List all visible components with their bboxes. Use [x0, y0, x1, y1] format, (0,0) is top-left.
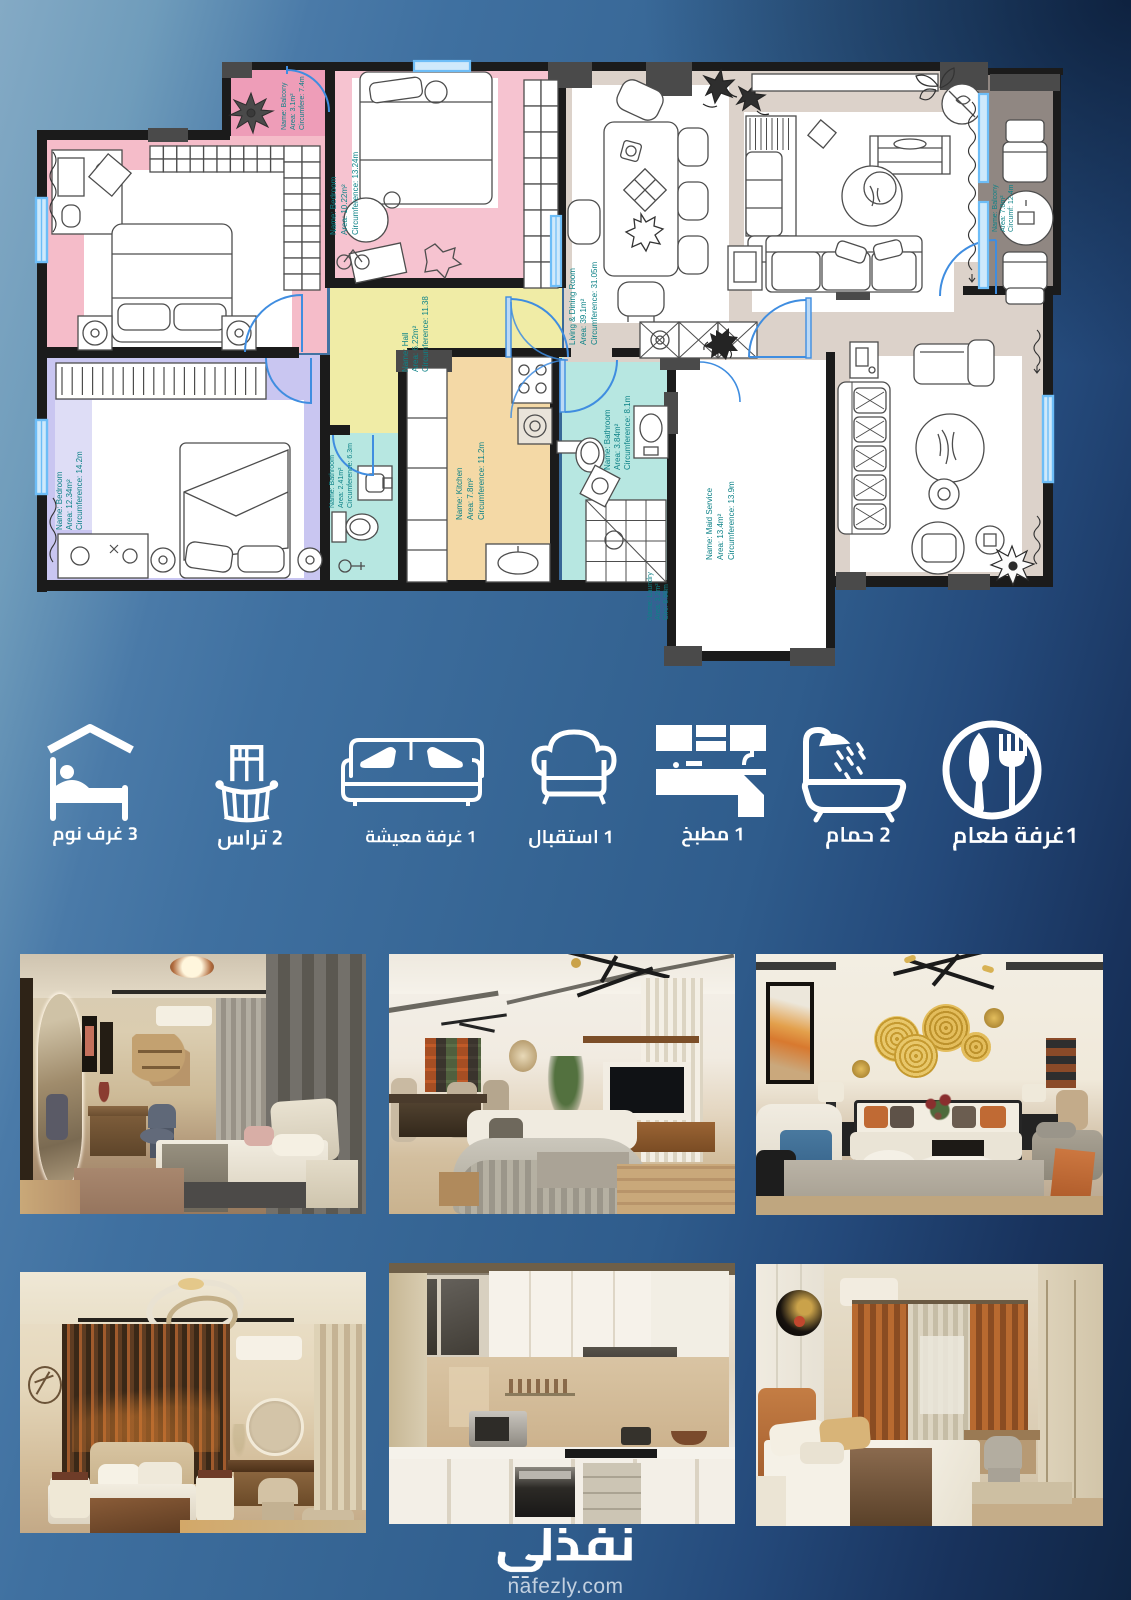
svg-text:Circumference: 8.1m: Circumference: 8.1m [623, 395, 632, 470]
svg-text:Area: 7.0m²: Area: 7.0m² [1000, 195, 1007, 232]
svg-text:Circumference: 14.2m: Circumference: 14.2m [75, 451, 84, 530]
svg-text:Name: Bedroom: Name: Bedroom [329, 176, 338, 235]
svg-text:Area: 2.41m²: Area: 2.41m² [338, 467, 345, 508]
svg-text:Circumference: 11.2m: Circumference: 11.2m [477, 442, 486, 520]
svg-text:Name: Laundry: Name: Laundry [647, 572, 654, 620]
svg-text:Circumference: 6.3m: Circumference: 6.3m [347, 443, 354, 508]
svg-text:Area: 10.22m²: Area: 10.22m² [340, 184, 349, 235]
svg-text:Circumference: 13.9m: Circumference: 13.9m [727, 481, 736, 560]
svg-text:Area: 3.84m²: Area: 3.84m² [613, 423, 622, 470]
svg-text:Area: 6.22m²: Area: 6.22m² [411, 325, 420, 372]
svg-text:Area: 7.8m²: Area: 7.8m² [466, 478, 475, 520]
svg-text:Area: 13.4m²: Area: 13.4m² [716, 513, 725, 560]
svg-text:Name: Kitchen: Name: Kitchen [455, 468, 464, 520]
svg-text:Living & Dining Room: Living & Dining Room [568, 268, 577, 345]
svg-text:Circ: 6.98m: Circ: 6.98m [663, 584, 670, 620]
svg-text:Name: Maid Service: Name: Maid Service [705, 487, 714, 560]
svg-text:Name: Bathroom: Name: Bathroom [329, 455, 336, 508]
svg-text:Circumference: 11.38: Circumference: 11.38 [421, 296, 430, 372]
svg-text:Circumfere: 7.4m: Circumfere: 7.4m [299, 76, 306, 130]
svg-text:Area: 39.1m²: Area: 39.1m² [579, 298, 588, 345]
svg-text:Name: Balcony: Name: Balcony [992, 184, 999, 232]
svg-text:Name: Balcony: Name: Balcony [281, 82, 288, 130]
svg-text:Area: 3.2m²: Area: 3.2m² [655, 583, 662, 620]
svg-text:Area: 3.1m²: Area: 3.1m² [290, 93, 297, 130]
svg-text:Circumference: 13.24m: Circumference: 13.24m [351, 152, 360, 235]
svg-text:Name: Bathroom: Name: Bathroom [603, 409, 612, 470]
svg-text:Area: 12.34m²: Area: 12.34m² [65, 479, 74, 530]
svg-text:Name: Hall: Name: Hall [401, 332, 410, 372]
svg-text:Circumf: 12.4m: Circumf: 12.4m [1008, 184, 1015, 232]
svg-text:Name: Bedroom: Name: Bedroom [55, 471, 64, 530]
svg-text:Circumference: 31.05m: Circumference: 31.05m [590, 262, 599, 345]
